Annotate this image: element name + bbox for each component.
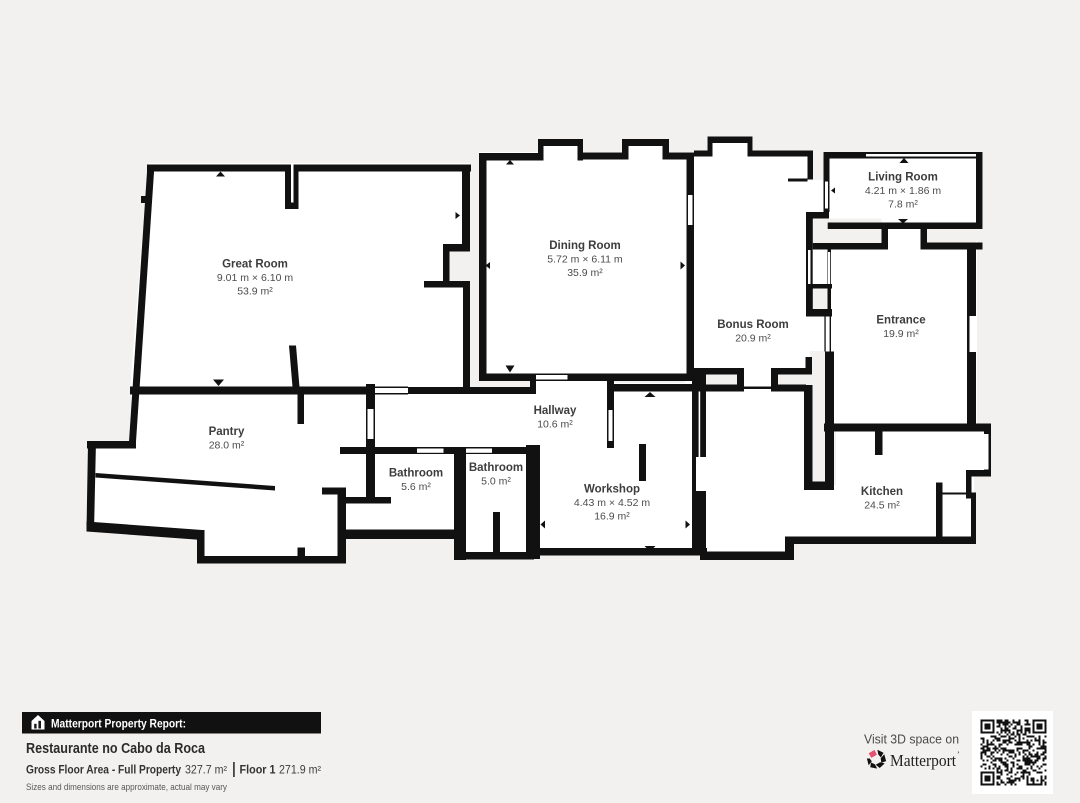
svg-text:24.5 m²: 24.5 m² bbox=[864, 500, 900, 512]
svg-text:5.72 m × 6.11 m: 5.72 m × 6.11 m bbox=[547, 254, 623, 266]
svg-text:Restaurante no Cabo da Roca: Restaurante no Cabo da Roca bbox=[26, 741, 206, 757]
svg-text:9.01 m × 6.10 m: 9.01 m × 6.10 m bbox=[217, 272, 293, 284]
svg-text:271.9 m²: 271.9 m² bbox=[279, 765, 321, 777]
svg-text:Sizes and dimensions are appro: Sizes and dimensions are approximate, ac… bbox=[26, 782, 227, 793]
svg-text:Visit 3D space on: Visit 3D space on bbox=[864, 733, 959, 747]
svg-text:Kitchen: Kitchen bbox=[861, 486, 903, 498]
svg-text:5.6 m²: 5.6 m² bbox=[401, 481, 431, 493]
svg-text:Dining Room: Dining Room bbox=[549, 240, 621, 252]
svg-text:35.9 m²: 35.9 m² bbox=[567, 267, 603, 279]
svg-text:4.21 m × 1.86 m: 4.21 m × 1.86 m bbox=[865, 185, 941, 197]
svg-text:20.9 m²: 20.9 m² bbox=[735, 333, 771, 345]
svg-text:ʼ: ʼ bbox=[957, 750, 960, 759]
svg-text:Living Room: Living Room bbox=[868, 172, 938, 184]
svg-text:Matterport: Matterport bbox=[890, 751, 956, 770]
svg-text:5.0 m²: 5.0 m² bbox=[481, 476, 511, 488]
svg-text:16.9 m²: 16.9 m² bbox=[594, 511, 630, 523]
svg-text:Pantry: Pantry bbox=[209, 426, 245, 438]
svg-text:Workshop: Workshop bbox=[584, 484, 640, 496]
svg-text:Great Room: Great Room bbox=[222, 259, 288, 271]
svg-text:327.7 m²: 327.7 m² bbox=[185, 765, 227, 777]
svg-text:Bonus Room: Bonus Room bbox=[717, 319, 789, 331]
svg-text:Matterport Property Report:: Matterport Property Report: bbox=[51, 719, 186, 731]
svg-text:10.6 m²: 10.6 m² bbox=[537, 419, 573, 431]
svg-text:Floor 1: Floor 1 bbox=[240, 765, 277, 777]
svg-text:28.0 m²: 28.0 m² bbox=[209, 440, 245, 452]
svg-text:7.8 m²: 7.8 m² bbox=[888, 199, 918, 211]
svg-text:Bathroom: Bathroom bbox=[469, 462, 523, 474]
svg-text:Bathroom: Bathroom bbox=[389, 468, 443, 480]
svg-text:4.43 m × 4.52 m: 4.43 m × 4.52 m bbox=[574, 497, 650, 509]
svg-text:Hallway: Hallway bbox=[534, 405, 577, 417]
svg-text:Entrance: Entrance bbox=[876, 315, 925, 327]
svg-text:Gross Floor Area - Full Proper: Gross Floor Area - Full Property bbox=[26, 765, 182, 777]
svg-text:19.9 m²: 19.9 m² bbox=[883, 328, 919, 340]
svg-text:53.9 m²: 53.9 m² bbox=[237, 286, 273, 298]
